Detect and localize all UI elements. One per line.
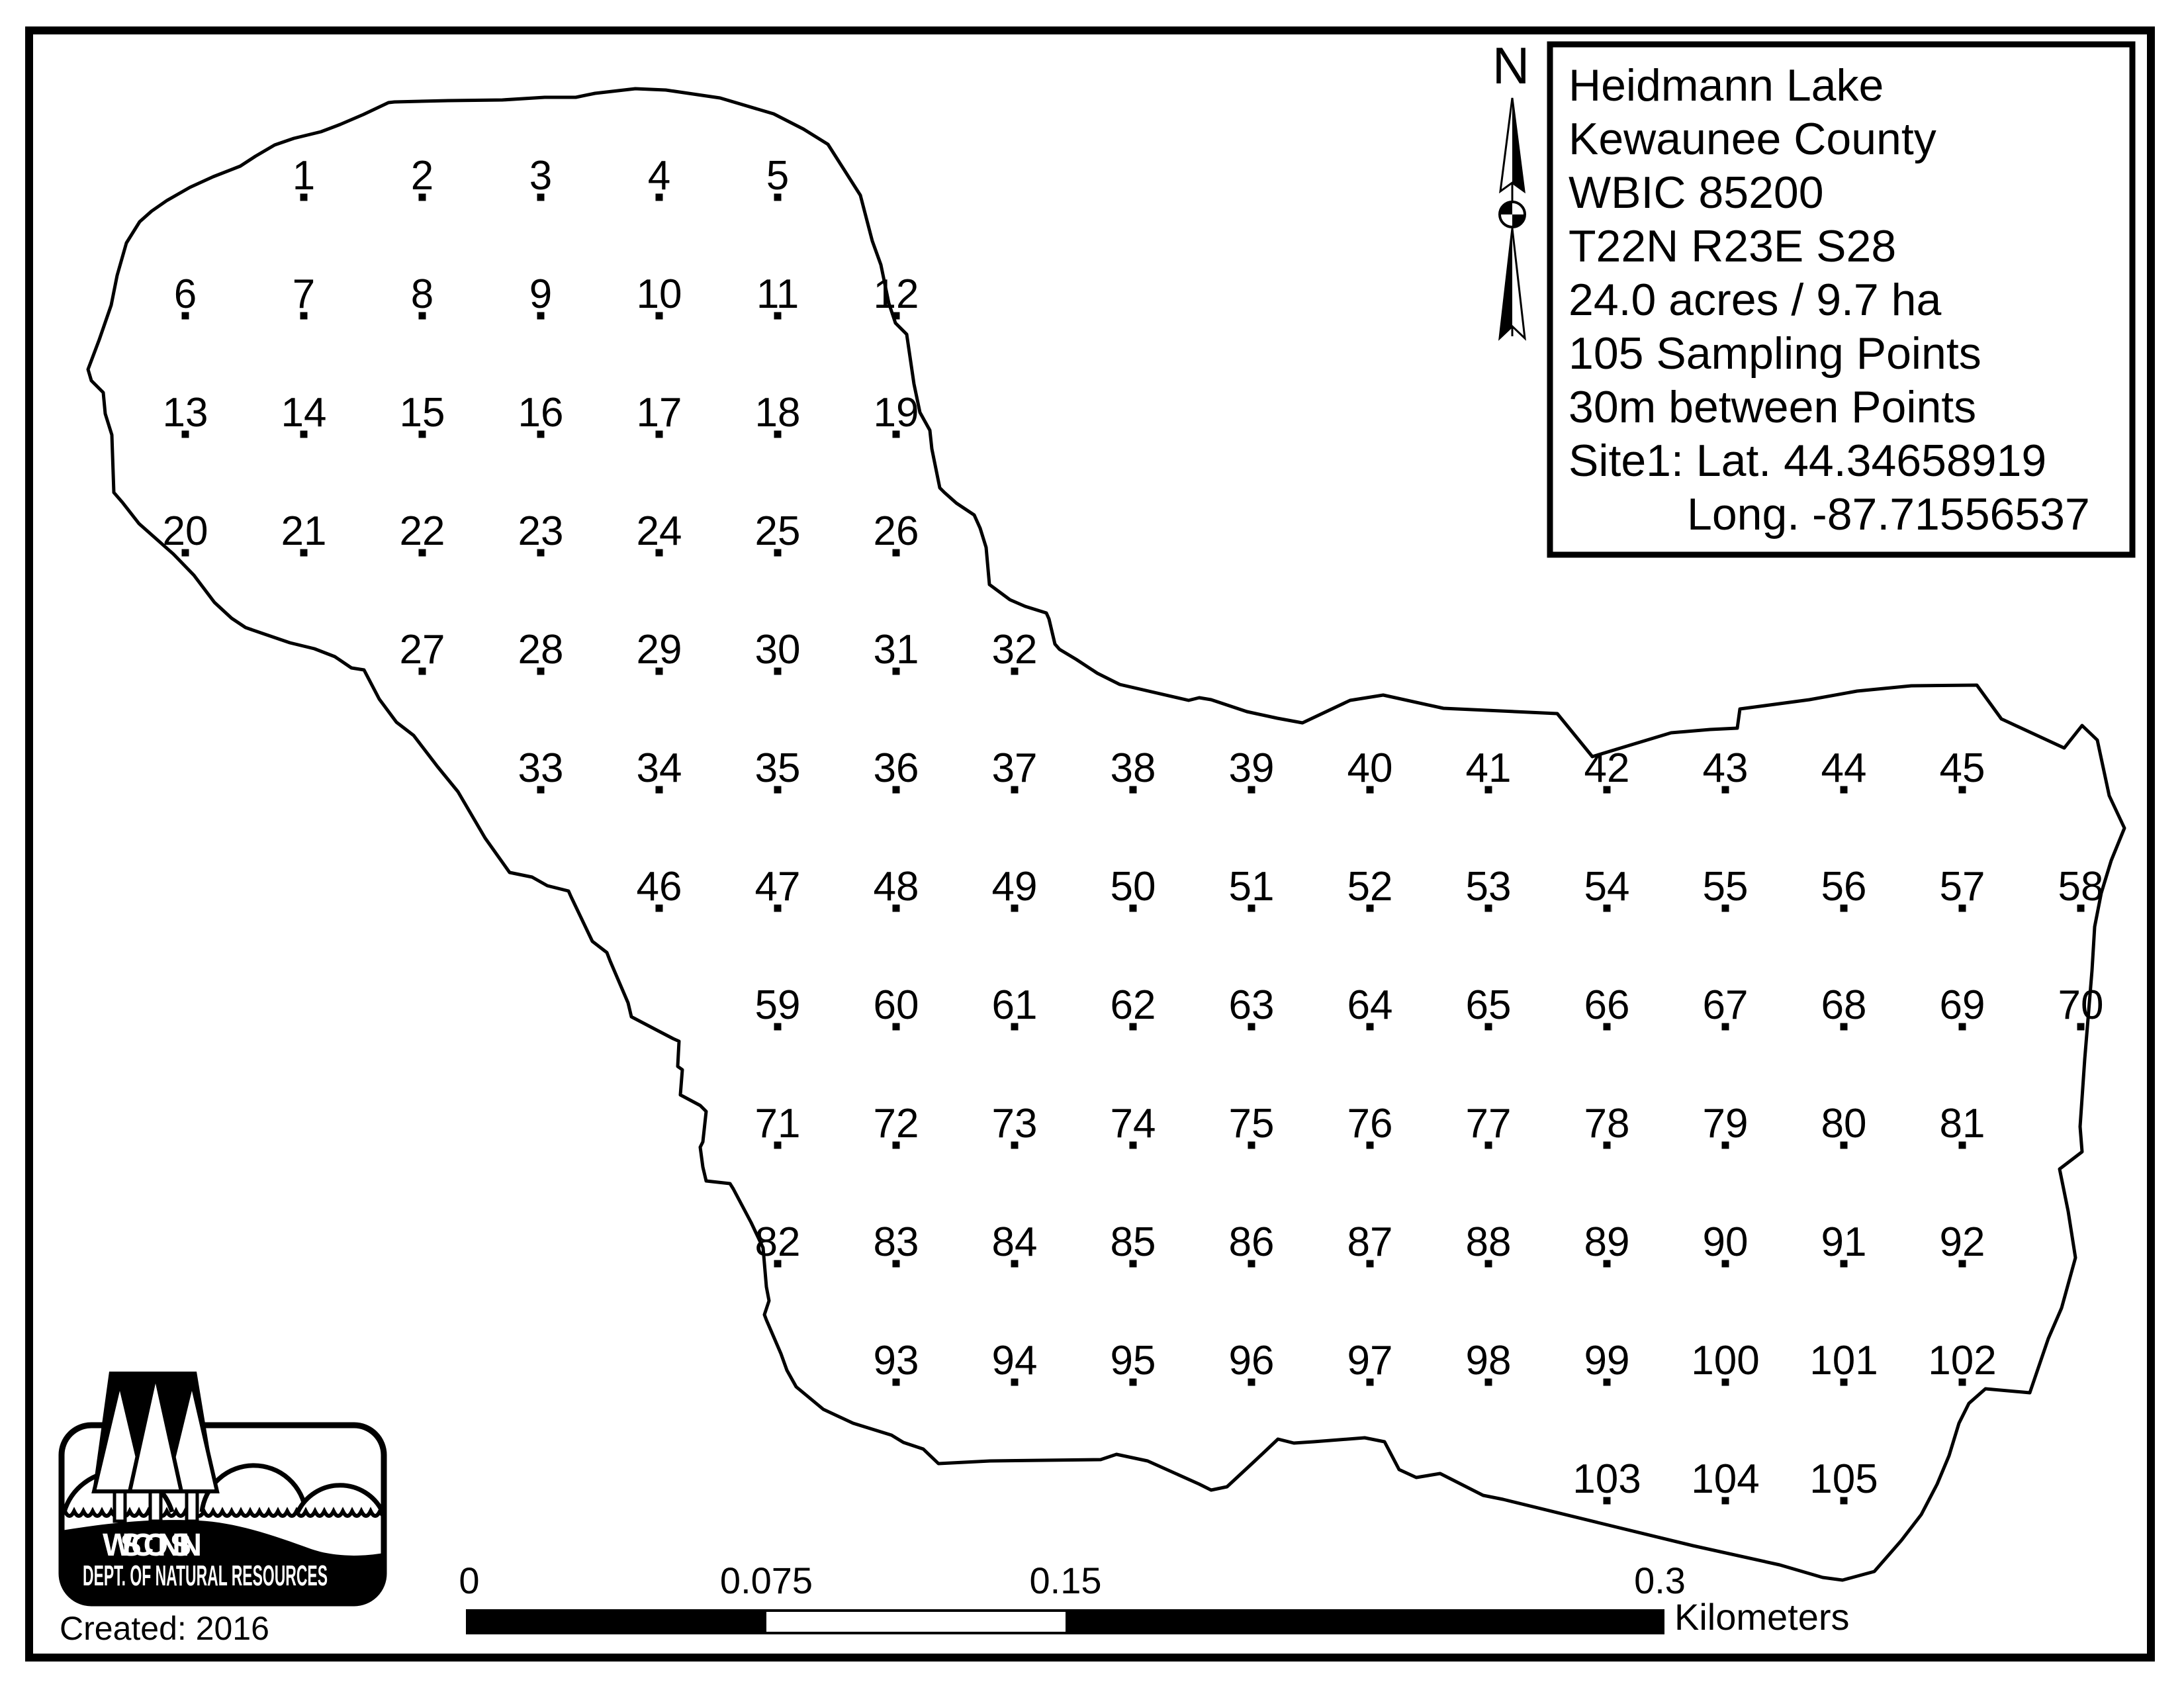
sampling-point-label-3: 3 bbox=[529, 153, 552, 199]
sampling-point-dot-61 bbox=[1011, 1023, 1019, 1031]
sampling-point-label-46: 46 bbox=[637, 864, 682, 910]
sampling-point-label-102: 102 bbox=[1928, 1338, 1996, 1383]
sampling-point-dot-94 bbox=[1011, 1379, 1019, 1386]
sampling-point-label-1: 1 bbox=[293, 153, 315, 199]
info-line-6: 105 Sampling Points bbox=[1569, 328, 1981, 379]
sampling-point-label-15: 15 bbox=[400, 390, 445, 436]
sampling-point-label-7: 7 bbox=[293, 271, 315, 317]
north-arrow: N bbox=[1492, 36, 1529, 338]
sampling-point-label-99: 99 bbox=[1584, 1338, 1630, 1383]
sampling-point-label-50: 50 bbox=[1111, 864, 1156, 910]
sampling-point-dot-41 bbox=[1485, 786, 1492, 794]
sampling-point-dot-65 bbox=[1485, 1023, 1492, 1031]
sampling-point-dot-18 bbox=[774, 431, 782, 438]
sampling-point-label-35: 35 bbox=[755, 745, 801, 791]
sampling-point-dot-101 bbox=[1841, 1379, 1848, 1386]
sampling-point-dot-30 bbox=[774, 668, 782, 675]
sampling-point-dot-99 bbox=[1604, 1379, 1611, 1386]
sampling-point-label-17: 17 bbox=[637, 390, 682, 436]
sampling-point-label-47: 47 bbox=[755, 864, 801, 910]
sampling-point-dot-6 bbox=[182, 312, 189, 320]
sampling-point-label-90: 90 bbox=[1703, 1219, 1749, 1265]
sampling-point-label-61: 61 bbox=[992, 982, 1038, 1028]
sampling-point-dot-68 bbox=[1841, 1023, 1848, 1031]
sampling-point-label-72: 72 bbox=[874, 1101, 919, 1147]
sampling-point-label-63: 63 bbox=[1229, 982, 1275, 1028]
sampling-point-label-68: 68 bbox=[1821, 982, 1867, 1028]
sampling-point-label-74: 74 bbox=[1111, 1101, 1156, 1147]
sampling-point-label-87: 87 bbox=[1347, 1219, 1393, 1265]
sampling-point-dot-35 bbox=[774, 786, 782, 794]
sampling-point-label-36: 36 bbox=[874, 745, 919, 791]
sampling-point-dot-8 bbox=[419, 312, 426, 320]
sampling-point-label-84: 84 bbox=[992, 1219, 1038, 1265]
logo-trunk-right bbox=[187, 1489, 197, 1521]
sampling-point-label-23: 23 bbox=[518, 508, 564, 554]
sampling-point-label-81: 81 bbox=[1940, 1101, 1985, 1147]
sampling-point-label-71: 71 bbox=[755, 1101, 801, 1147]
sampling-point-dot-55 bbox=[1722, 905, 1729, 912]
info-line-9: Long. -87.71556537 bbox=[1687, 489, 2090, 539]
sampling-point-dot-43 bbox=[1722, 786, 1729, 794]
sampling-point-dot-90 bbox=[1722, 1260, 1729, 1268]
sampling-point-dot-92 bbox=[1959, 1260, 1966, 1268]
sampling-point-dot-27 bbox=[419, 668, 426, 675]
logo-trunk-left bbox=[114, 1489, 125, 1521]
sampling-point-label-4: 4 bbox=[648, 153, 670, 199]
sampling-point-label-38: 38 bbox=[1111, 745, 1156, 791]
sampling-point-label-45: 45 bbox=[1940, 745, 1985, 791]
sampling-point-label-78: 78 bbox=[1584, 1101, 1630, 1147]
sampling-point-dot-22 bbox=[419, 549, 426, 557]
sampling-point-dot-97 bbox=[1367, 1379, 1374, 1386]
sampling-point-dot-103 bbox=[1604, 1497, 1611, 1505]
sampling-point-dot-56 bbox=[1841, 905, 1848, 912]
north-arrow-label: N bbox=[1492, 36, 1529, 95]
sampling-point-dot-77 bbox=[1485, 1142, 1492, 1149]
sampling-point-dot-25 bbox=[774, 549, 782, 557]
sampling-point-dot-4 bbox=[656, 194, 663, 201]
sampling-point-dot-76 bbox=[1367, 1142, 1374, 1149]
sampling-point-dot-91 bbox=[1841, 1260, 1848, 1268]
sampling-point-dot-50 bbox=[1130, 905, 1137, 912]
scale-bar-segment-1 bbox=[467, 1611, 766, 1633]
sampling-point-label-44: 44 bbox=[1821, 745, 1867, 791]
sampling-point-dot-44 bbox=[1841, 786, 1848, 794]
sampling-point-label-92: 92 bbox=[1940, 1219, 1985, 1265]
sampling-point-dot-95 bbox=[1130, 1379, 1137, 1386]
sampling-point-label-56: 56 bbox=[1821, 864, 1867, 910]
sampling-point-dot-31 bbox=[893, 668, 900, 675]
sampling-point-dot-96 bbox=[1248, 1379, 1255, 1386]
sampling-point-label-9: 9 bbox=[529, 271, 552, 317]
info-line-4: T22N R23E S28 bbox=[1569, 221, 1896, 271]
sampling-point-dot-16 bbox=[537, 431, 545, 438]
sampling-point-dot-12 bbox=[893, 312, 900, 320]
sampling-point-label-52: 52 bbox=[1347, 864, 1393, 910]
sampling-point-label-43: 43 bbox=[1703, 745, 1749, 791]
sampling-point-dot-15 bbox=[419, 431, 426, 438]
sampling-point-label-80: 80 bbox=[1821, 1101, 1867, 1147]
sampling-point-dot-69 bbox=[1959, 1023, 1966, 1031]
sampling-point-dot-13 bbox=[182, 431, 189, 438]
sampling-point-label-82: 82 bbox=[755, 1219, 801, 1265]
scale-bar-segment-2 bbox=[766, 1611, 1066, 1633]
sampling-point-dot-14 bbox=[300, 431, 308, 438]
sampling-point-label-105: 105 bbox=[1809, 1456, 1878, 1502]
sampling-point-label-22: 22 bbox=[400, 508, 445, 554]
sampling-point-label-98: 98 bbox=[1466, 1338, 1512, 1383]
sampling-point-label-85: 85 bbox=[1111, 1219, 1156, 1265]
info-line-8: Site1: Lat. 44.34658919 bbox=[1569, 436, 2046, 486]
sampling-point-label-73: 73 bbox=[992, 1101, 1038, 1147]
lake-map: 1234567891011121314151617181920212223242… bbox=[0, 0, 2184, 1688]
info-line-7: 30m between Points bbox=[1569, 382, 1976, 432]
sampling-point-dot-37 bbox=[1011, 786, 1019, 794]
sampling-point-label-24: 24 bbox=[637, 508, 682, 554]
sampling-point-dot-38 bbox=[1130, 786, 1137, 794]
sampling-point-label-89: 89 bbox=[1584, 1219, 1630, 1265]
created-label: Created: 2016 bbox=[60, 1610, 269, 1647]
sampling-point-dot-83 bbox=[893, 1260, 900, 1268]
logo-state-label: WISCONSIN bbox=[103, 1528, 202, 1563]
sampling-point-dot-47 bbox=[774, 905, 782, 912]
sampling-point-label-95: 95 bbox=[1111, 1338, 1156, 1383]
sampling-point-dot-20 bbox=[182, 549, 189, 557]
sampling-point-dot-39 bbox=[1248, 786, 1255, 794]
sampling-point-dot-48 bbox=[893, 905, 900, 912]
sampling-point-label-27: 27 bbox=[400, 627, 445, 673]
sampling-point-label-79: 79 bbox=[1703, 1101, 1749, 1147]
sampling-point-dot-78 bbox=[1604, 1142, 1611, 1149]
sampling-point-label-97: 97 bbox=[1347, 1338, 1393, 1383]
sampling-point-dot-62 bbox=[1130, 1023, 1137, 1031]
logo-dept-label: DEPT. OF NATURAL RESOURCES bbox=[83, 1560, 328, 1592]
sampling-point-label-91: 91 bbox=[1821, 1219, 1867, 1265]
sampling-point-dot-51 bbox=[1248, 905, 1255, 912]
sampling-point-label-58: 58 bbox=[2058, 864, 2104, 910]
north-arrow-sphere-nw bbox=[1500, 202, 1512, 214]
scale-tick-015: 0.15 bbox=[1030, 1560, 1102, 1601]
sampling-point-dot-40 bbox=[1367, 786, 1374, 794]
sampling-point-label-14: 14 bbox=[281, 390, 327, 436]
sampling-point-dot-84 bbox=[1011, 1260, 1019, 1268]
sampling-point-label-94: 94 bbox=[992, 1338, 1038, 1383]
sampling-point-label-11: 11 bbox=[756, 271, 799, 317]
sampling-point-label-13: 13 bbox=[163, 390, 208, 436]
sampling-point-dot-88 bbox=[1485, 1260, 1492, 1268]
sampling-point-label-66: 66 bbox=[1584, 982, 1630, 1028]
sampling-point-dot-87 bbox=[1367, 1260, 1374, 1268]
sampling-point-label-77: 77 bbox=[1466, 1101, 1512, 1147]
sampling-point-dot-85 bbox=[1130, 1260, 1137, 1268]
sampling-point-dot-3 bbox=[537, 194, 545, 201]
sampling-point-label-59: 59 bbox=[755, 982, 801, 1028]
sampling-point-dot-75 bbox=[1248, 1142, 1255, 1149]
scale-bar-segment-3 bbox=[1066, 1611, 1663, 1633]
sampling-point-label-57: 57 bbox=[1940, 864, 1985, 910]
info-line-2: Kewaunee County bbox=[1569, 114, 1936, 164]
sampling-point-label-48: 48 bbox=[874, 864, 919, 910]
sampling-point-label-104: 104 bbox=[1691, 1456, 1759, 1502]
map-page: 1234567891011121314151617181920212223242… bbox=[0, 0, 2184, 1688]
sampling-point-dot-58 bbox=[2077, 905, 2085, 912]
sampling-point-dot-34 bbox=[656, 786, 663, 794]
sampling-point-label-33: 33 bbox=[518, 745, 564, 791]
sampling-point-label-40: 40 bbox=[1347, 745, 1393, 791]
sampling-point-dot-42 bbox=[1604, 786, 1611, 794]
sampling-point-label-76: 76 bbox=[1347, 1101, 1393, 1147]
sampling-point-label-100: 100 bbox=[1691, 1338, 1759, 1383]
sampling-point-label-2: 2 bbox=[411, 153, 433, 199]
sampling-point-label-6: 6 bbox=[174, 271, 197, 317]
sampling-point-dot-105 bbox=[1841, 1497, 1848, 1505]
sampling-point-dot-5 bbox=[774, 194, 782, 201]
sampling-point-dot-82 bbox=[774, 1260, 782, 1268]
sampling-point-label-30: 30 bbox=[755, 627, 801, 673]
sampling-point-label-31: 31 bbox=[874, 627, 919, 673]
sampling-point-label-93: 93 bbox=[874, 1338, 919, 1383]
sampling-point-label-18: 18 bbox=[755, 390, 801, 436]
sampling-point-dot-70 bbox=[2077, 1023, 2085, 1031]
sampling-point-dot-73 bbox=[1011, 1142, 1019, 1149]
sampling-point-label-75: 75 bbox=[1229, 1101, 1275, 1147]
sampling-point-label-42: 42 bbox=[1584, 745, 1630, 791]
sampling-point-label-54: 54 bbox=[1584, 864, 1630, 910]
scale-unit-label: Kilometers bbox=[1674, 1596, 1850, 1638]
sampling-point-label-16: 16 bbox=[518, 390, 564, 436]
sampling-point-label-12: 12 bbox=[874, 271, 919, 317]
sampling-point-label-53: 53 bbox=[1466, 864, 1512, 910]
sampling-point-dot-71 bbox=[774, 1142, 782, 1149]
sampling-point-label-96: 96 bbox=[1229, 1338, 1275, 1383]
logo-trunk-mid bbox=[150, 1489, 161, 1521]
sampling-point-label-25: 25 bbox=[755, 508, 801, 554]
sampling-point-dot-9 bbox=[537, 312, 545, 320]
info-line-3: WBIC 85200 bbox=[1569, 167, 1824, 218]
sampling-point-label-64: 64 bbox=[1347, 982, 1393, 1028]
sampling-point-dot-104 bbox=[1722, 1497, 1729, 1505]
sampling-point-dot-79 bbox=[1722, 1142, 1729, 1149]
north-arrow-sphere-se bbox=[1512, 214, 1525, 227]
info-box: Heidmann Lake Kewaunee County WBIC 85200… bbox=[1550, 44, 2132, 555]
sampling-point-dot-11 bbox=[774, 312, 782, 320]
sampling-point-label-86: 86 bbox=[1229, 1219, 1275, 1265]
info-line-5: 24.0 acres / 9.7 ha bbox=[1569, 275, 1941, 325]
sampling-point-dot-7 bbox=[300, 312, 308, 320]
sampling-point-dot-46 bbox=[656, 905, 663, 912]
sampling-point-label-88: 88 bbox=[1466, 1219, 1512, 1265]
sampling-point-label-29: 29 bbox=[637, 627, 682, 673]
sampling-point-dot-17 bbox=[656, 431, 663, 438]
sampling-point-dot-64 bbox=[1367, 1023, 1374, 1031]
sampling-point-dot-19 bbox=[893, 431, 900, 438]
sampling-point-label-37: 37 bbox=[992, 745, 1038, 791]
sampling-point-label-19: 19 bbox=[874, 390, 919, 436]
sampling-point-dot-98 bbox=[1485, 1379, 1492, 1386]
sampling-point-dot-1 bbox=[300, 194, 308, 201]
sampling-point-label-20: 20 bbox=[163, 508, 208, 554]
sampling-point-dot-93 bbox=[893, 1379, 900, 1386]
scale-tick-03: 0.3 bbox=[1634, 1560, 1686, 1601]
sampling-point-dot-23 bbox=[537, 549, 545, 557]
sampling-point-label-101: 101 bbox=[1809, 1338, 1878, 1383]
sampling-point-label-103: 103 bbox=[1572, 1456, 1641, 1502]
scale-tick-0075: 0.075 bbox=[720, 1560, 813, 1601]
sampling-point-label-32: 32 bbox=[992, 627, 1038, 673]
sampling-point-dot-36 bbox=[893, 786, 900, 794]
sampling-point-dot-86 bbox=[1248, 1260, 1255, 1268]
sampling-point-label-70: 70 bbox=[2058, 982, 2104, 1028]
sampling-point-dot-100 bbox=[1722, 1379, 1729, 1386]
sampling-point-label-26: 26 bbox=[874, 508, 919, 554]
sampling-point-dot-80 bbox=[1841, 1142, 1848, 1149]
sampling-point-label-49: 49 bbox=[992, 864, 1038, 910]
sampling-point-label-65: 65 bbox=[1466, 982, 1512, 1028]
sampling-point-dot-24 bbox=[656, 549, 663, 557]
sampling-point-dot-28 bbox=[537, 668, 545, 675]
sampling-point-label-83: 83 bbox=[874, 1219, 919, 1265]
scale-bar: 0 0.075 0.15 0.3 Kilometers bbox=[459, 1560, 1849, 1638]
sampling-point-label-69: 69 bbox=[1940, 982, 1985, 1028]
sampling-point-label-39: 39 bbox=[1229, 745, 1275, 791]
sampling-point-label-51: 51 bbox=[1229, 864, 1275, 910]
sampling-point-label-28: 28 bbox=[518, 627, 564, 673]
sampling-point-dot-10 bbox=[656, 312, 663, 320]
sampling-point-dot-59 bbox=[774, 1023, 782, 1031]
sampling-point-label-67: 67 bbox=[1703, 982, 1749, 1028]
sampling-point-dot-33 bbox=[537, 786, 545, 794]
sampling-point-dot-32 bbox=[1011, 668, 1019, 675]
sampling-point-dot-57 bbox=[1959, 905, 1966, 912]
sampling-point-dot-89 bbox=[1604, 1260, 1611, 1268]
sampling-point-dot-53 bbox=[1485, 905, 1492, 912]
sampling-point-label-8: 8 bbox=[411, 271, 433, 317]
sampling-point-dot-26 bbox=[893, 549, 900, 557]
dnr-logo: WISCONSIN DEPT. OF NATURAL RESOURCES bbox=[62, 1372, 389, 1603]
scale-tick-0: 0 bbox=[459, 1560, 479, 1601]
sampling-point-label-10: 10 bbox=[637, 271, 682, 317]
sampling-point-dot-66 bbox=[1604, 1023, 1611, 1031]
sampling-point-label-41: 41 bbox=[1466, 745, 1512, 791]
info-line-1: Heidmann Lake bbox=[1569, 60, 1884, 111]
sampling-point-label-21: 21 bbox=[281, 508, 327, 554]
sampling-point-label-34: 34 bbox=[637, 745, 682, 791]
sampling-point-dot-81 bbox=[1959, 1142, 1966, 1149]
sampling-point-dot-72 bbox=[893, 1142, 900, 1149]
sampling-point-dot-49 bbox=[1011, 905, 1019, 912]
sampling-point-label-5: 5 bbox=[766, 153, 789, 199]
sampling-point-label-62: 62 bbox=[1111, 982, 1156, 1028]
sampling-point-dot-63 bbox=[1248, 1023, 1255, 1031]
sampling-point-dot-67 bbox=[1722, 1023, 1729, 1031]
sampling-point-label-55: 55 bbox=[1703, 864, 1749, 910]
sampling-point-dot-60 bbox=[893, 1023, 900, 1031]
sampling-point-dot-45 bbox=[1959, 786, 1966, 794]
sampling-point-label-60: 60 bbox=[874, 982, 919, 1028]
sampling-point-dot-54 bbox=[1604, 905, 1611, 912]
sampling-point-dot-21 bbox=[300, 549, 308, 557]
sampling-point-dot-2 bbox=[419, 194, 426, 201]
sampling-point-dot-102 bbox=[1959, 1379, 1966, 1386]
sampling-point-dot-29 bbox=[656, 668, 663, 675]
sampling-point-dot-52 bbox=[1367, 905, 1374, 912]
sampling-point-dot-74 bbox=[1130, 1142, 1137, 1149]
